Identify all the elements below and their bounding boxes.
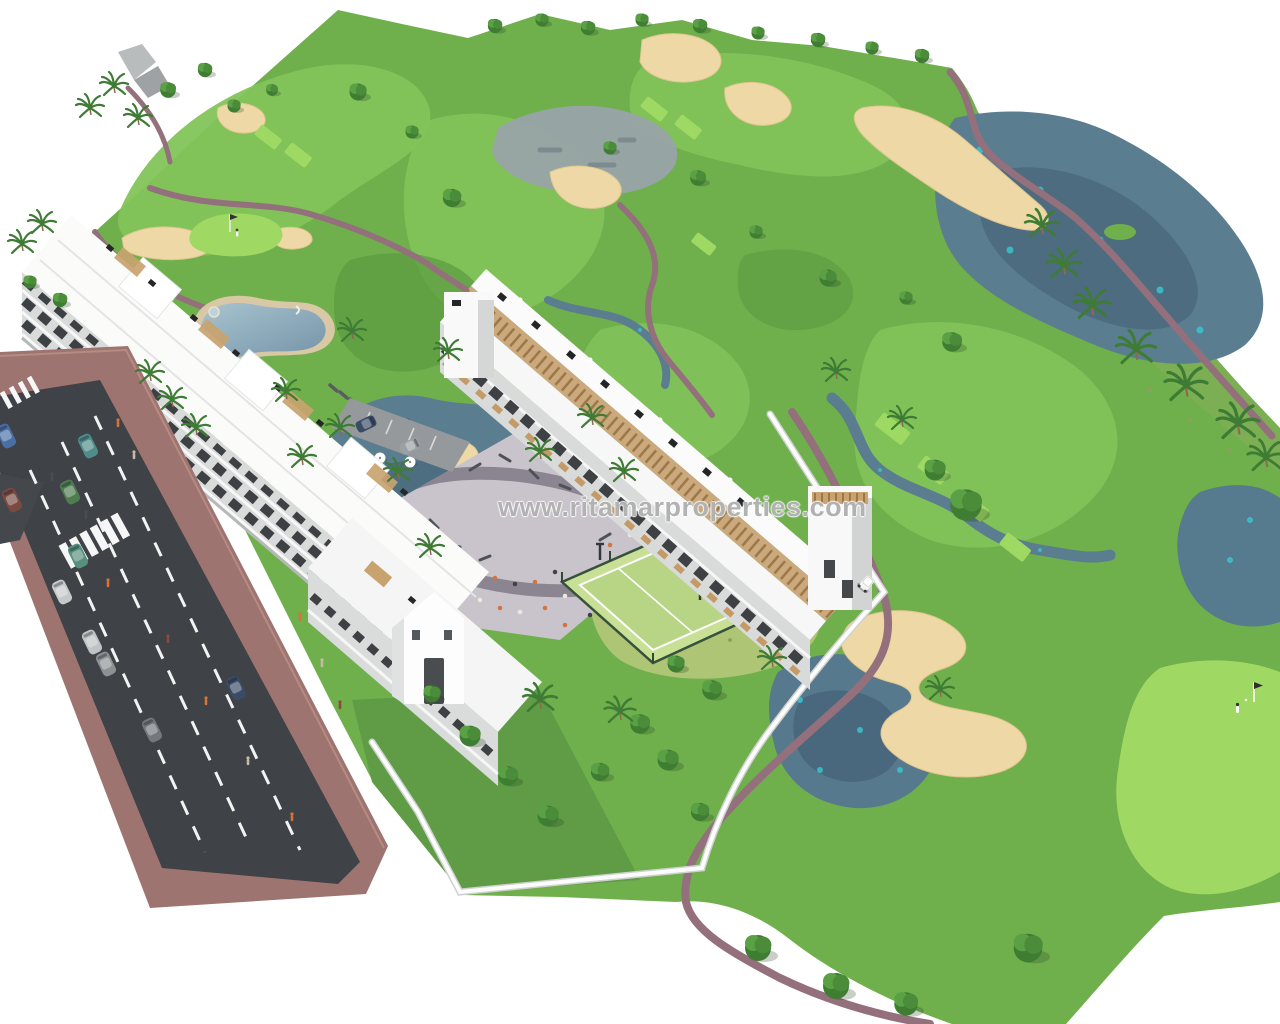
tree [693, 19, 711, 34]
tower-window [842, 580, 853, 598]
tower-window [824, 560, 835, 578]
palm-tree [100, 72, 128, 95]
golf-ball [1245, 699, 1247, 701]
pedestrian [116, 418, 119, 427]
tree [915, 49, 933, 64]
pedestrian [204, 696, 207, 705]
pedestrian [320, 658, 323, 667]
left-tower-shade [478, 300, 494, 378]
pedestrian [298, 612, 301, 621]
pedestrian [106, 578, 109, 587]
lake-island [1104, 224, 1136, 240]
watermark: www.ritamarproperties.com [498, 492, 867, 523]
palm-tree [76, 94, 104, 117]
pedestrian [290, 812, 293, 821]
pedestrian [246, 756, 249, 765]
putting-green-right [1116, 660, 1280, 894]
gable-window [444, 630, 452, 640]
ac-unit [452, 300, 461, 306]
tree [198, 63, 216, 78]
pedestrian [84, 510, 87, 519]
spa-circle [209, 307, 219, 317]
gable-tower-shade [392, 618, 404, 704]
tree [745, 935, 778, 962]
pedestrian [50, 472, 53, 481]
palm-tree [28, 210, 56, 233]
rendering-image: www.ritamarproperties.com [0, 0, 1280, 1024]
tree [636, 14, 653, 28]
gable-window [412, 630, 420, 640]
tree [160, 82, 180, 98]
pedestrian [338, 700, 341, 709]
pedestrian [132, 450, 135, 459]
tree [866, 42, 883, 56]
pedestrian [166, 634, 169, 643]
tree [752, 27, 769, 41]
tree [811, 33, 829, 48]
golfer [236, 229, 239, 237]
